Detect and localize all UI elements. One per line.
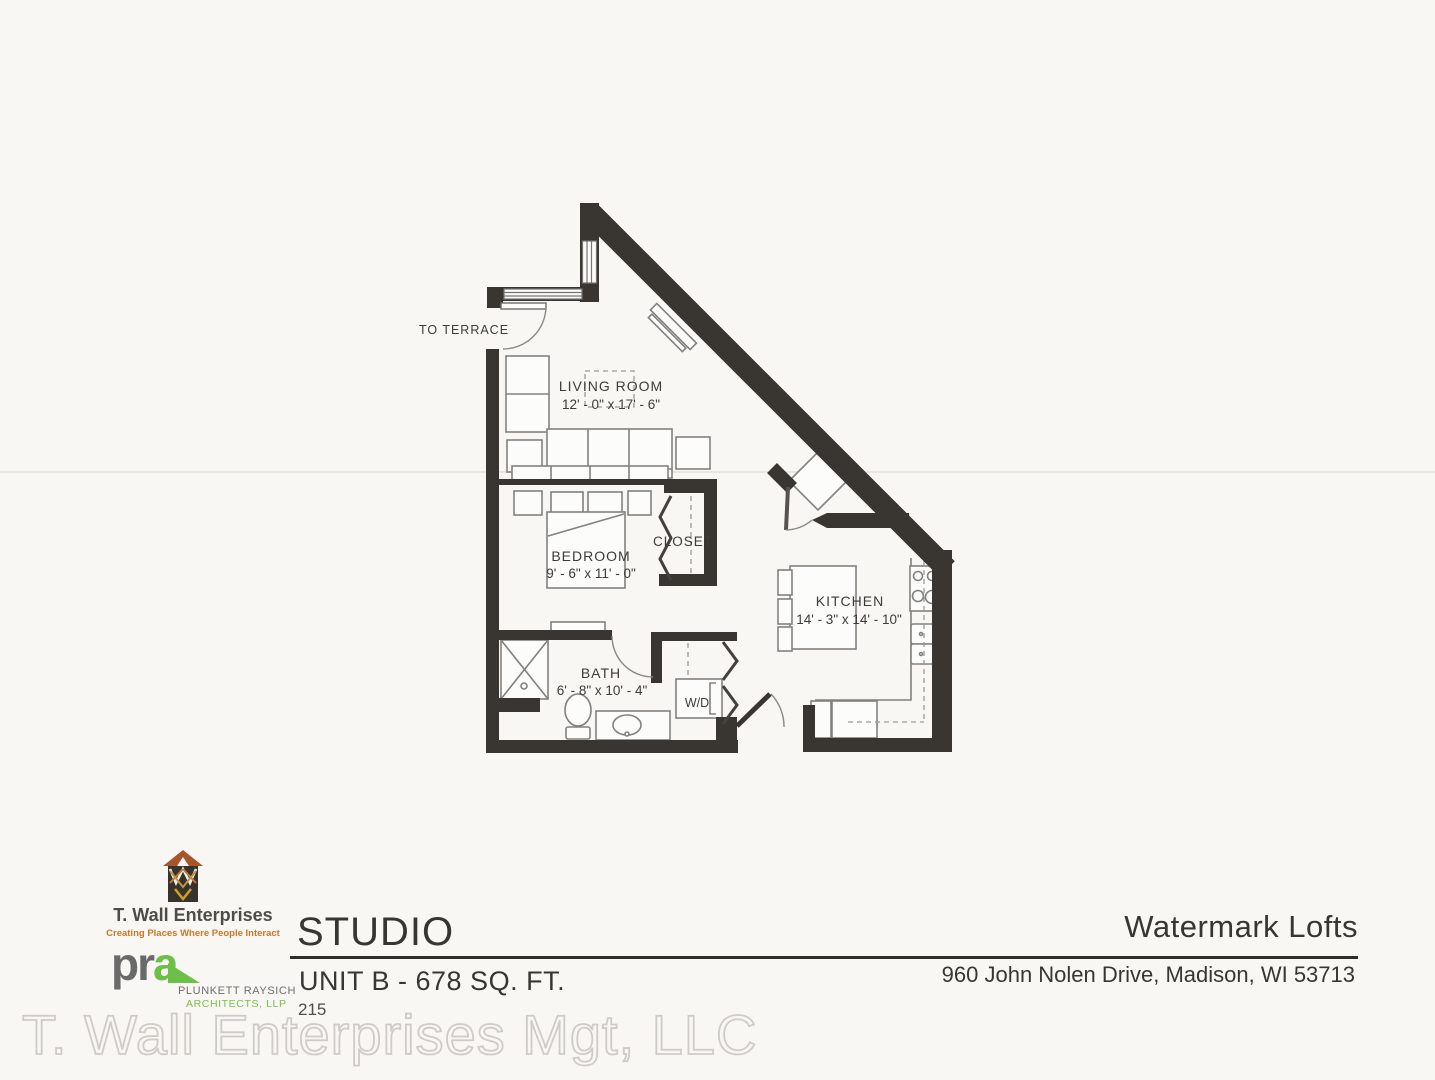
management-watermark: T. Wall Enterprises Mgt, LLC [22,1002,757,1067]
pillow-icon [551,492,583,513]
room-dims: 6' - 8" x 10' - 4" [557,683,648,698]
property-name: Watermark Lofts [1124,909,1358,945]
room-label: LIVING ROOM [559,378,663,394]
twall-tower-logo-icon [162,849,204,903]
window-icon [583,241,597,283]
room-dims: 14' - 3" x 14' - 10" [796,612,902,627]
entry-door-swing [771,694,784,727]
room-dims: 9' - 6" x 11' - 0" [546,566,636,581]
room-label: W/D [685,696,709,710]
chair-icon [778,599,792,624]
nightstand-icon [514,491,542,515]
room-dims: 12' - 0" x 17' - 6" [562,397,660,412]
terrace-door-swing [503,306,546,349]
twall-company-name: T. Wall Enterprises [108,905,278,926]
vanity-sink-icon [596,711,670,740]
room-label: BEDROOM [551,548,630,564]
pra-logo-pr: pr [111,938,153,990]
terrace-label: TO TERRACE [419,323,509,337]
wd-bifold-door [723,642,737,680]
entry-door-leaf [737,694,770,726]
dashed-lines [585,371,924,722]
pillow-icon [588,492,622,513]
unit-type-title: STUDIO [297,910,454,955]
kitchen-door-leaf [786,487,788,530]
dishwasher-icon [832,701,877,738]
nightstand-icon [628,491,651,515]
room-label: BATH [581,665,621,681]
property-address: 960 John Nolen Drive, Madison, WI 53713 [942,962,1355,988]
kitchen-door-swing [786,520,812,530]
chair-icon [778,627,792,651]
shower-icon [501,640,548,699]
console-icon [512,466,668,480]
room-label: CLOSET [653,534,713,549]
room-label: KITCHEN [816,593,884,609]
shower-half-wall [486,698,540,712]
terrace-door-leaf [501,303,546,309]
chair-icon [778,570,792,595]
pra-triangle-icon [167,961,201,985]
scanned-floorplan-page: TO TERRACE LIVING ROOM 12' - 0" x 17' - … [0,0,1435,1080]
lounge-chair-icon [506,356,549,432]
toilet-icon [565,694,591,739]
pra-firm-name: PLUNKETT RAYSICH [178,985,296,997]
window-icon [504,289,582,299]
unit-info: UNIT B - 678 SQ. FT. [299,966,565,997]
end-table-icon [676,437,710,469]
title-divider-line [290,956,1358,959]
